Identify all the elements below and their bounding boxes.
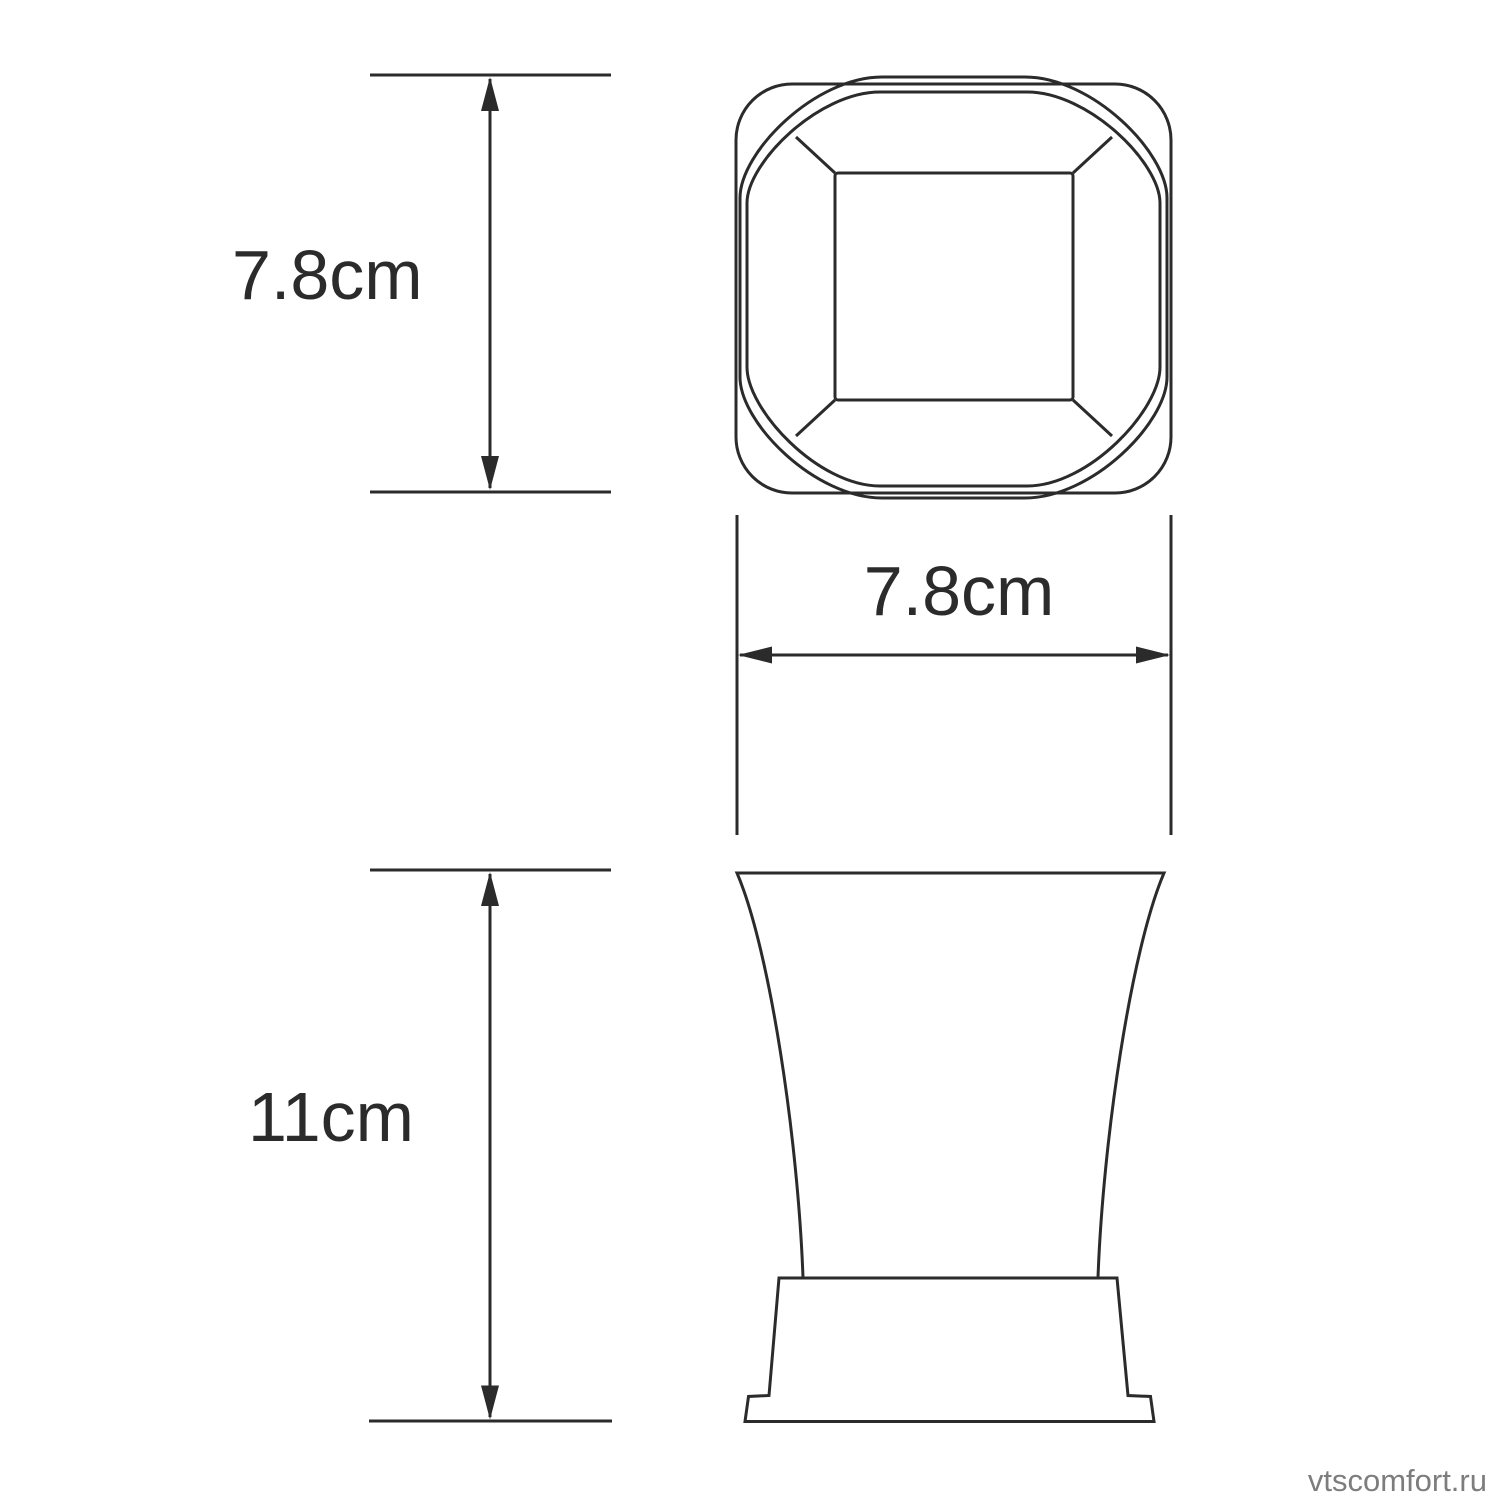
arrow-up-icon xyxy=(481,77,499,111)
drawing-svg xyxy=(0,0,1496,1506)
dimension-label-front-view-height: 11cm xyxy=(248,1082,414,1152)
dimension-label-top-view-height: 7.8cm xyxy=(232,240,423,310)
arrow-right-icon xyxy=(1136,647,1170,664)
dimension-label-top-view-width: 7.8cm xyxy=(864,556,1055,626)
watermark-text: vtscomfort.ru xyxy=(1308,1464,1487,1498)
front-view-base xyxy=(745,1278,1154,1422)
top-view xyxy=(736,77,1171,498)
top-view-facet-line-top-right xyxy=(1073,137,1112,173)
arrow-down-icon xyxy=(481,456,499,490)
top-view-facet-line-top-left xyxy=(796,137,835,173)
top-view-inner-square xyxy=(835,173,1073,400)
top-view-outer-rim xyxy=(740,77,1167,498)
top-view-facet-line-bottom-right xyxy=(1073,400,1112,436)
arrow-up-icon xyxy=(481,872,499,906)
front-view-body xyxy=(737,873,1164,1278)
front-view xyxy=(737,873,1164,1422)
arrow-down-icon xyxy=(481,1386,499,1420)
top-view-facet-line-bottom-left xyxy=(796,400,835,436)
diagram-canvas: 7.8cm 7.8cm 11cm vtscomfort.ru xyxy=(0,0,1496,1506)
arrow-left-icon xyxy=(738,647,772,664)
